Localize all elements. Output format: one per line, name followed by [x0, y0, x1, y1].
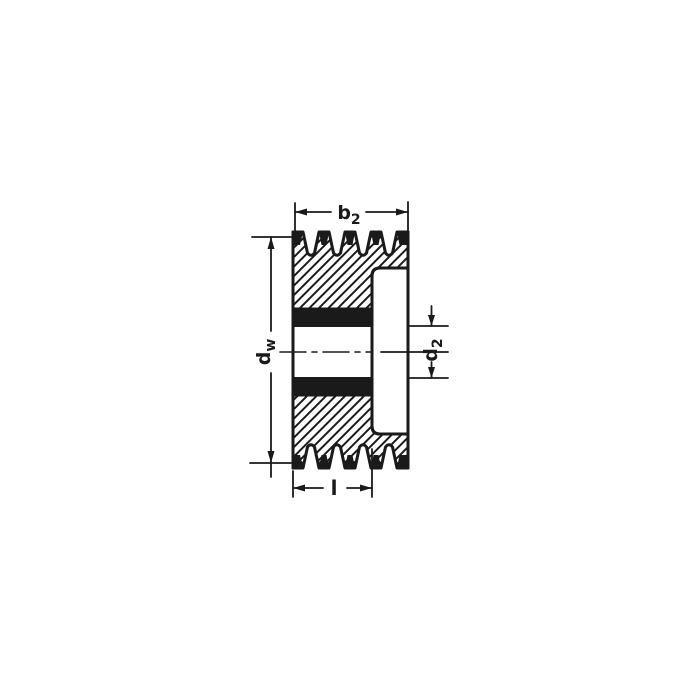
canvas-background: [0, 0, 700, 700]
hub-section-band-lower: [293, 377, 372, 395]
hub-section-band-upper: [293, 309, 372, 327]
l-label: l: [331, 476, 338, 500]
pulley-section-drawing: b2 dw d2: [0, 0, 700, 700]
